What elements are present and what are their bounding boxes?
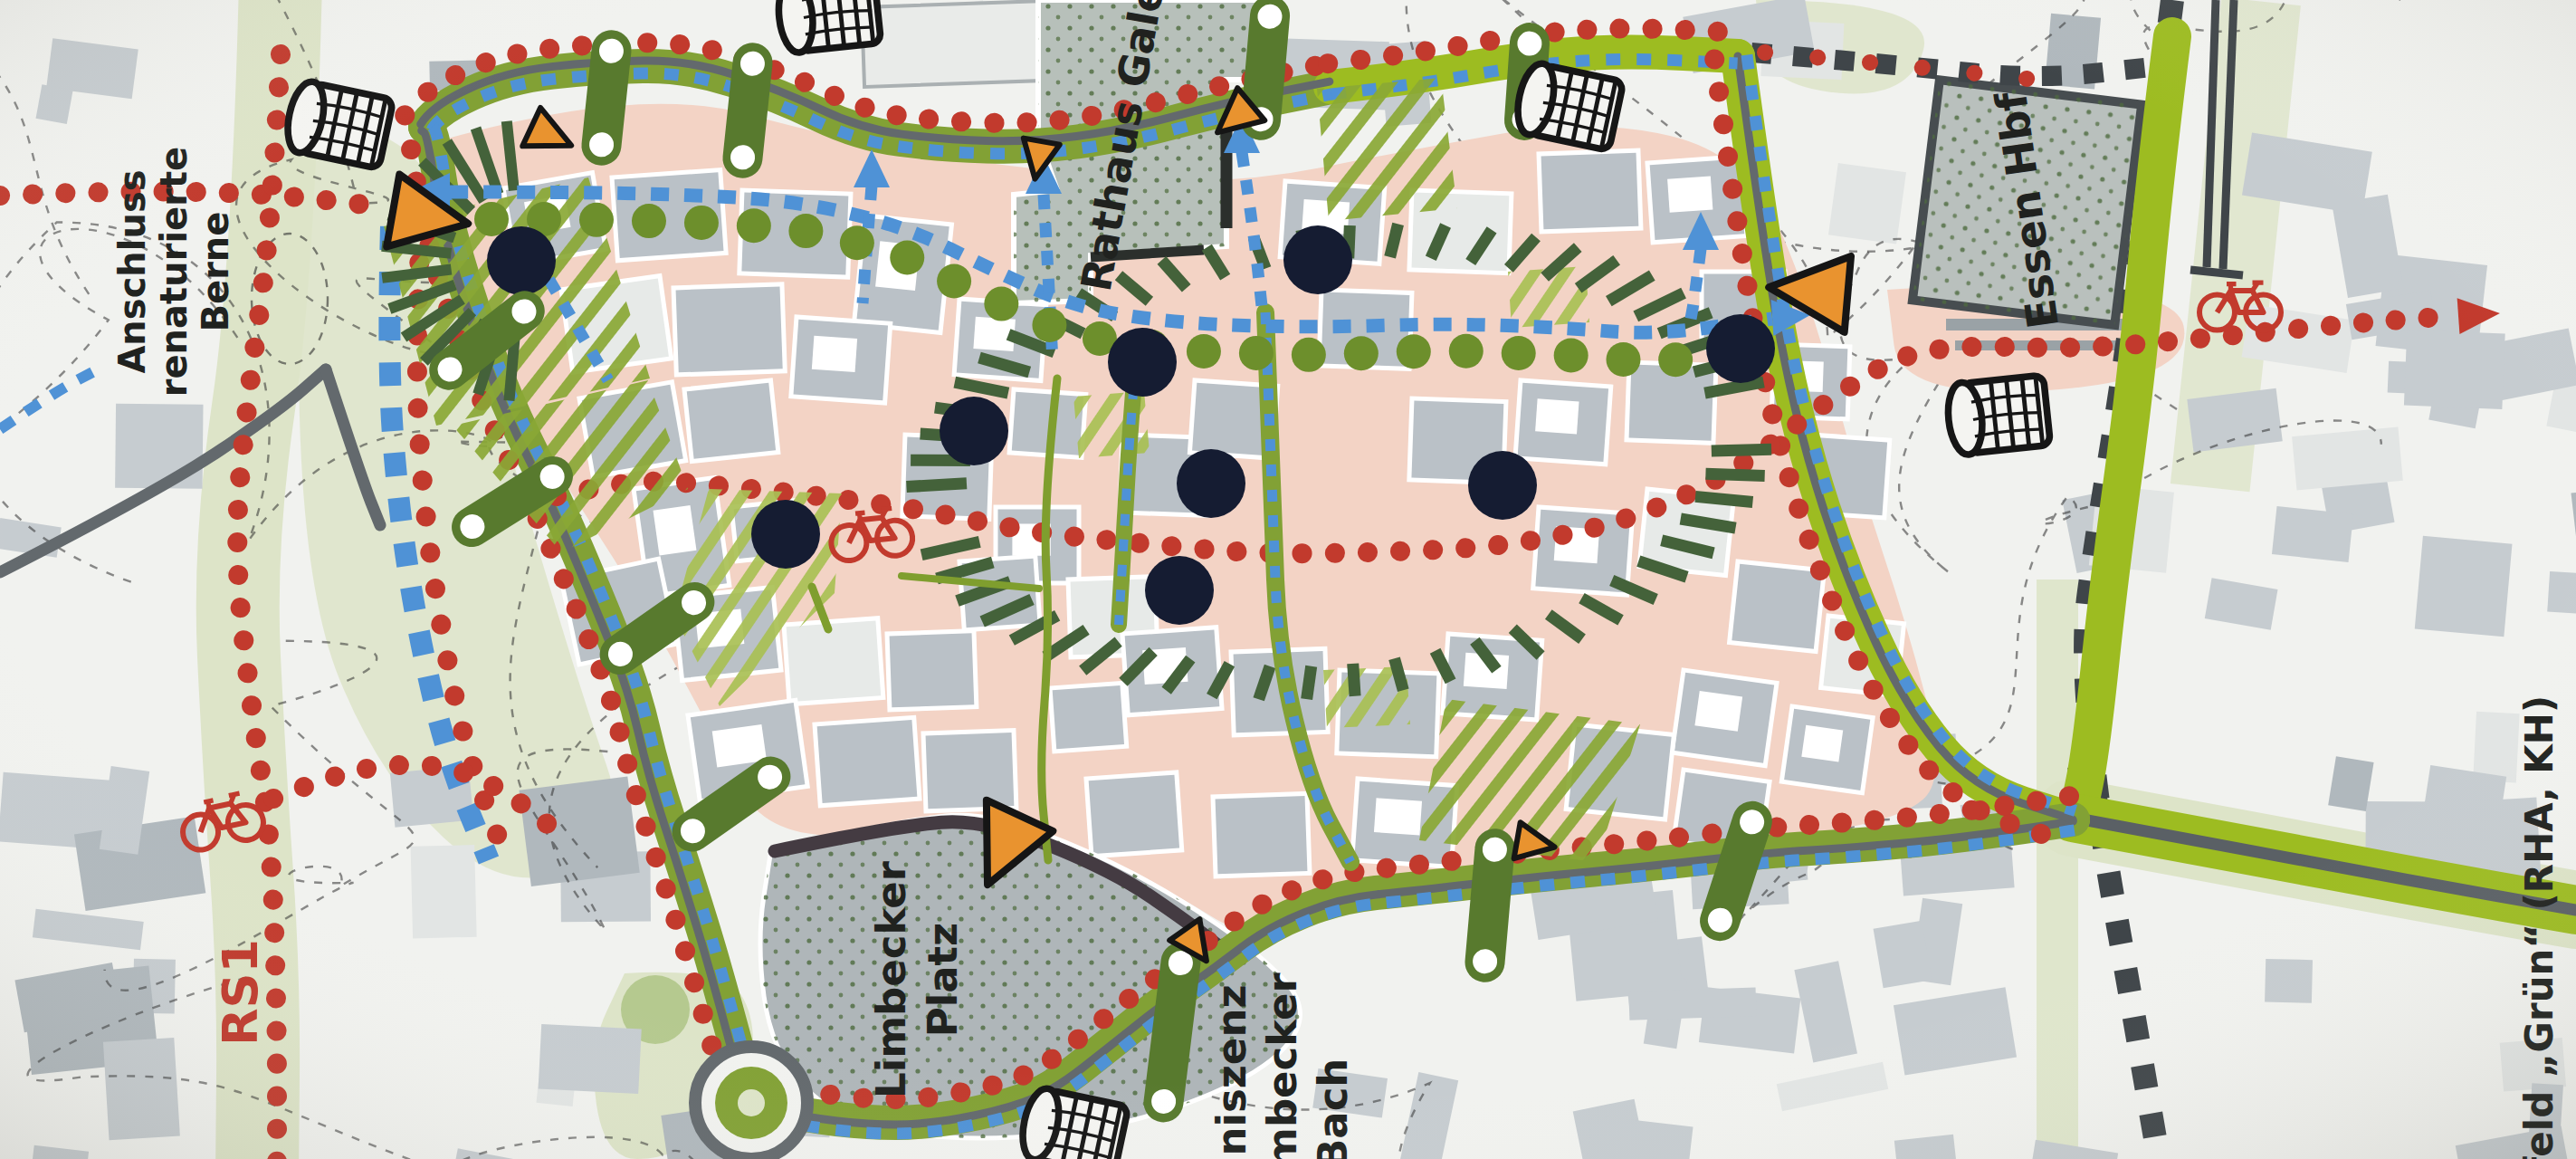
city-map: Anschluss renaturierte Berne RS1 Rathaus… xyxy=(0,0,2576,1159)
photo-vignette xyxy=(0,0,2576,1159)
